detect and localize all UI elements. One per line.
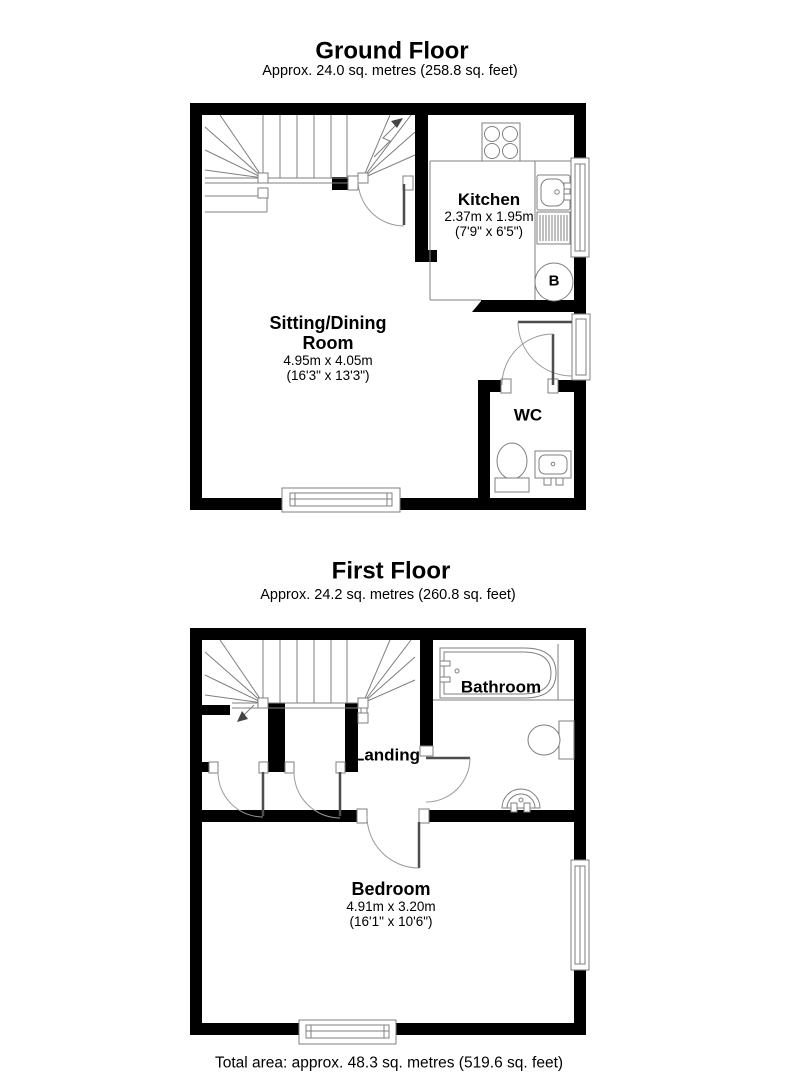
wc-door [501,334,558,393]
stairs-door [348,176,413,226]
bedroom-side-window [571,860,589,970]
sitting-dining-dims-imperial: (16'3" x 13'3") [270,368,387,383]
kitchen-label: Kitchen 2.37m x 1.95m (7'9" x 6'5") [444,190,533,239]
staircase [205,115,415,212]
bedroom-dims-metric: 4.91m x 3.20m [346,899,435,914]
closet-door-right [285,762,345,818]
wc-toilet-icon [495,443,529,492]
bedroom-name: Bedroom [346,879,435,899]
hob-icon [482,123,520,161]
kitchen-window [571,158,589,257]
first-floor-title: First Floor [332,559,451,586]
ground-floor-plan [190,103,590,512]
boiler-label: B [549,274,560,291]
wc-label: WC [514,405,542,424]
kitchen-sink-icon [537,175,573,210]
basin-icon [502,789,540,812]
landing-label: Landing [354,745,420,764]
floorplan-page: Ground Floor Approx. 24.0 sq. metres (25… [0,0,785,1080]
drainer-icon [537,212,570,244]
first-floor-subtitle: Approx. 24.2 sq. metres (260.8 sq. feet) [260,587,516,603]
sitting-dining-dims-metric: 4.95m x 4.05m [270,353,387,368]
toilet-icon [528,721,574,759]
stairs-up-arrow-icon [374,118,403,157]
sitting-dining-name-line2: Room [270,333,387,353]
bathroom-door [420,746,470,802]
sitting-dining-room-label: Sitting/Dining Room 4.95m x 4.05m (16'3"… [270,313,387,384]
ground-floor-subtitle: Approx. 24.0 sq. metres (258.8 sq. feet) [262,63,518,79]
bathroom-fixtures [433,644,574,812]
kitchen-dims-imperial: (7'9" x 6'5") [444,224,533,239]
closet-door-left [209,762,268,817]
bedroom-window [299,1020,396,1044]
bathroom-label: Bathroom [461,677,541,696]
ground-floor-walls [190,103,586,510]
sitting-dining-name-line1: Sitting/Dining [270,313,387,333]
staircase [205,640,415,723]
total-area-text: Total area: approx. 48.3 sq. metres (519… [215,1054,563,1071]
ground-floor-title: Ground Floor [315,39,468,66]
bedroom-door [357,809,429,868]
kitchen-dims-metric: 2.37m x 1.95m [444,209,533,224]
bedroom-label: Bedroom 4.91m x 3.20m (16'1" x 10'6") [346,879,435,929]
wc-fixtures [495,443,571,492]
bedroom-dims-imperial: (16'1" x 10'6") [346,914,435,929]
wc-basin-icon [535,451,571,485]
kitchen-name: Kitchen [444,190,533,209]
sitting-room-window [282,488,400,512]
